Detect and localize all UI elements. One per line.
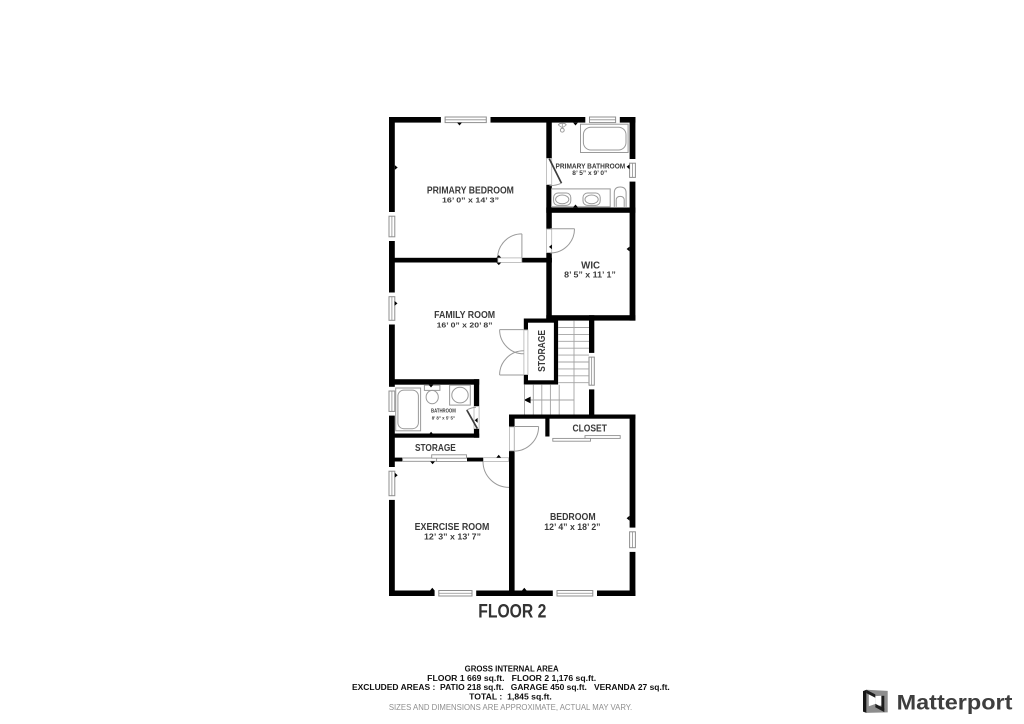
svg-text:12’ 4” x 18’ 2”: 12’ 4” x 18’ 2” bbox=[544, 522, 600, 532]
svg-text:FLOOR 2: FLOOR 2 bbox=[478, 600, 546, 622]
svg-text:BATHROOM: BATHROOM bbox=[431, 409, 456, 415]
svg-text:SIZES AND DIMENSIONS ARE APPRO: SIZES AND DIMENSIONS ARE APPROXIMATE, AC… bbox=[389, 703, 632, 712]
svg-text:Matterport: Matterport bbox=[897, 692, 1013, 715]
svg-text:FLOOR 1 669 sq.ft. FLOOR 2 1: FLOOR 1 669 sq.ft. FLOOR 2 1,176 sq.ft. bbox=[427, 674, 596, 683]
svg-text:GROSS INTERNAL AREA: GROSS INTERNAL AREA bbox=[465, 664, 559, 673]
svg-text:TOTAL : 1,845 sq.ft.: TOTAL : 1,845 sq.ft. bbox=[469, 693, 552, 702]
svg-text:CLOSET: CLOSET bbox=[573, 424, 608, 435]
svg-text:STORAGE: STORAGE bbox=[415, 443, 456, 454]
svg-text:EXCLUDED AREAS : PATIO 218 sq: EXCLUDED AREAS : PATIO 218 sq.ft. GARAGE… bbox=[352, 683, 670, 692]
svg-text:8’ 5” x 9’ 0”: 8’ 5” x 9’ 0” bbox=[572, 170, 607, 177]
svg-text:STORAGE: STORAGE bbox=[537, 330, 548, 372]
svg-text:16’ 0” x 20’ 8”: 16’ 0” x 20’ 8” bbox=[437, 320, 493, 329]
svg-text:FAMILY ROOM: FAMILY ROOM bbox=[434, 310, 495, 321]
svg-text:12’ 3” x 13’ 7”: 12’ 3” x 13’ 7” bbox=[424, 532, 481, 542]
svg-text:16’ 0” x 14’ 3”: 16’ 0” x 14’ 3” bbox=[442, 196, 499, 205]
svg-text:8’ 5” x 11’ 1”: 8’ 5” x 11’ 1” bbox=[564, 271, 616, 280]
svg-text:8’ 8” x 5’ 5”: 8’ 8” x 5’ 5” bbox=[432, 415, 455, 420]
